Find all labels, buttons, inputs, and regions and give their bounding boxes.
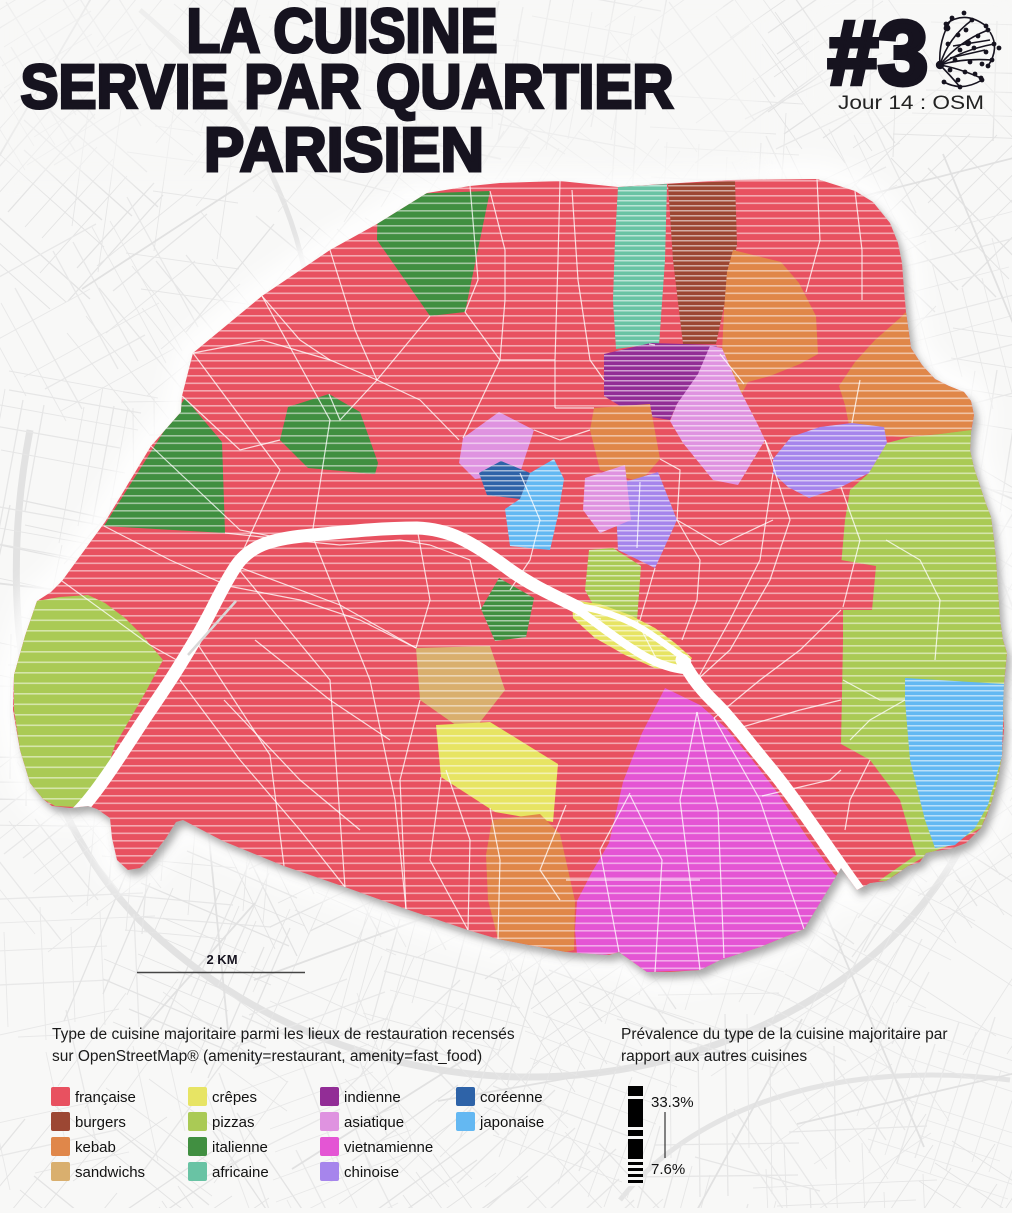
svg-text:Type de cuisine majoritaire pa: Type de cuisine majoritaire parmi les li… xyxy=(52,1026,515,1043)
svg-text:2 KM: 2 KM xyxy=(206,952,237,967)
svg-text:française: française xyxy=(75,1089,136,1106)
svg-text:SERVIE PAR QUARTIER: SERVIE PAR QUARTIER xyxy=(21,53,674,122)
svg-text:vietnamienne: vietnamienne xyxy=(344,1139,433,1156)
svg-text:7.6%: 7.6% xyxy=(651,1161,685,1178)
svg-text:indienne: indienne xyxy=(344,1089,401,1106)
svg-text:sur OpenStreetMap® (amenity=re: sur OpenStreetMap® (amenity=restaurant, … xyxy=(52,1048,482,1065)
svg-text:italienne: italienne xyxy=(212,1139,268,1156)
svg-text:#3: #3 xyxy=(828,4,928,104)
svg-text:chinoise: chinoise xyxy=(344,1164,399,1181)
svg-text:crêpes: crêpes xyxy=(212,1089,257,1106)
svg-text:burgers: burgers xyxy=(75,1114,126,1131)
svg-text:33.3%: 33.3% xyxy=(651,1094,694,1111)
svg-text:Prévalence du type de la cuisi: Prévalence du type de la cuisine majorit… xyxy=(621,1026,948,1043)
svg-text:pizzas: pizzas xyxy=(212,1114,255,1131)
svg-text:coréenne: coréenne xyxy=(480,1089,543,1106)
svg-text:japonaise: japonaise xyxy=(479,1114,544,1131)
svg-text:africaine: africaine xyxy=(212,1164,269,1181)
svg-text:asiatique: asiatique xyxy=(344,1114,404,1131)
svg-text:rapport aux autres cuisines: rapport aux autres cuisines xyxy=(621,1048,807,1065)
svg-text:Jour 14 : OSM: Jour 14 : OSM xyxy=(838,93,984,114)
svg-text:kebab: kebab xyxy=(75,1139,116,1156)
svg-text:sandwichs: sandwichs xyxy=(75,1164,145,1181)
svg-text:PARISIEN: PARISIEN xyxy=(204,116,484,185)
